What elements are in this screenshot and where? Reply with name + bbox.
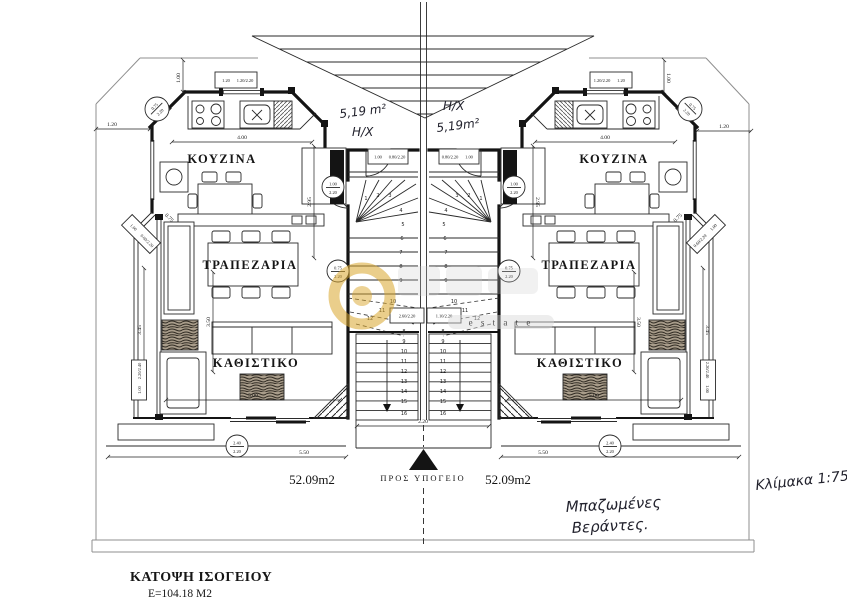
dining-label-left: ΤΡΑΠΕΖΑΡΙΑ <box>202 258 297 272</box>
title-block: ΚΑΤΟΨΗ ΙΣΟΓΕΙΟΥ Ε=104.18 Μ2 <box>130 570 272 600</box>
dim-label: 2.95 <box>534 197 540 207</box>
step-num: 4 <box>399 208 402 214</box>
kitchen-label-right: ΚΟΥΖΙΝΑ <box>579 152 648 166</box>
entry-hall-notes: 5,19 m² Η/Χ Η/Χ 5,19m² <box>339 99 481 139</box>
step-num: 2 <box>467 193 470 199</box>
verandas-note-line1: Μπαζωμένες <box>565 493 662 516</box>
opening-label: 2.20 <box>510 190 518 195</box>
step-num: 14 <box>401 389 407 395</box>
verandas-note-line2: Βεράντες. <box>571 515 649 537</box>
dim-label: 4.00 <box>237 135 247 141</box>
living-label-right: ΚΑΘΙΣΤΙΚΟ <box>537 356 623 370</box>
floor-plan-page: ΠΡΟΣ ΥΠΟΓΕΙΟ 4.00 4.00 2.95 2.95 1.20 1.… <box>0 0 847 600</box>
step-num: 13 <box>401 379 407 385</box>
unit-area-left: 52.09m2 <box>289 472 335 487</box>
opening-label: 2.20 <box>329 190 337 195</box>
step-num: 13 <box>440 379 446 385</box>
hall-area-right: 5,19m² <box>436 116 481 135</box>
opening-label: 2.40 <box>233 441 241 446</box>
opening-label: 2.20/2.40 <box>705 362 710 379</box>
dim-label: 2.20 <box>418 419 428 425</box>
dim-label: 5.50 <box>299 450 309 456</box>
opening-label: 1.20 <box>617 78 625 83</box>
drawing-area: Ε=104.18 Μ2 <box>148 588 212 600</box>
opening-label: 1.00 <box>374 155 382 160</box>
opening-label: 1.00 <box>510 182 518 187</box>
step-num: 1 <box>479 196 482 202</box>
step-num: 6 <box>400 236 403 242</box>
kitchen-label-left: ΚΟΥΖΙΝΑ <box>187 152 256 166</box>
dim-label: 3.45 <box>137 325 143 335</box>
dining-label-right: ΤΡΑΠΕΖΑΡΙΑ <box>541 258 636 272</box>
living-label-left: ΚΑΘΙΣΤΙΚΟ <box>213 356 299 370</box>
dim-label: 1.00 <box>176 73 182 83</box>
step-num: 9 <box>441 339 444 345</box>
to-basement-label: ΠΡΟΣ ΥΠΟΓΕΙΟ <box>380 473 465 483</box>
opening-label: 0.80/2.20 <box>389 155 406 160</box>
hall-left: Η/Χ <box>352 125 374 139</box>
step-num: 16 <box>401 411 407 417</box>
step-num: 10 <box>401 349 407 355</box>
step-num: 3 <box>388 193 391 199</box>
step-num: 11 <box>440 359 446 365</box>
step-num: 3 <box>455 193 458 199</box>
dim-label: 1.00 <box>665 73 671 83</box>
opening-label: 2.20 <box>233 449 241 454</box>
scale-note: Κλίμακα 1:75 <box>755 468 847 494</box>
step-num: 7 <box>444 250 447 256</box>
opening-label: 1.00 <box>137 385 142 393</box>
step-num: 4 <box>444 208 447 214</box>
basement-arrow-icon <box>409 449 438 470</box>
dim-label: 4.00 <box>600 135 610 141</box>
step-num: 8 <box>441 329 444 335</box>
dim-label: 3.45 <box>704 325 710 335</box>
opening-label: 2.20/2.40 <box>137 362 142 379</box>
step-num: 11 <box>462 308 468 314</box>
step-num: 10 <box>451 299 457 305</box>
step-num: 16 <box>440 411 446 417</box>
step-num: 15 <box>440 399 446 405</box>
step-num: 5 <box>442 222 445 228</box>
opening-label: 2.60/2.20 <box>399 314 416 319</box>
floor-plan-drawing: ΠΡΟΣ ΥΠΟΓΕΙΟ 4.00 4.00 2.95 2.95 1.20 1.… <box>0 0 847 600</box>
step-num: 1 <box>364 196 367 202</box>
step-num: 6 <box>443 236 446 242</box>
watermark-text: e s t a t e <box>469 318 534 328</box>
opening-label: 1.20/2.20 <box>237 78 254 83</box>
dim-label: 1.20 <box>107 122 117 128</box>
step-num: 11 <box>401 359 407 365</box>
opening-label: 1.20/2.20 <box>594 78 611 83</box>
opening-label: 1.20 <box>222 78 230 83</box>
entrance-canopy <box>250 36 596 118</box>
stair-numbers: 1 2 3 4 5 6 7 8 9 10 11 12 8 9 10 11 12 … <box>364 193 482 417</box>
dim-label: 5.00 <box>589 393 599 399</box>
unit-area-right: 52.09m2 <box>485 472 531 487</box>
hall-area-left: 5,19 m² <box>339 101 388 121</box>
dim-label: 3.50 <box>206 317 212 327</box>
hall-right: Η/Χ <box>443 99 465 113</box>
dim-label: 2.95 <box>307 197 313 207</box>
step-num: 14 <box>440 389 446 395</box>
step-num: 5 <box>401 222 404 228</box>
step-num: 10 <box>440 349 446 355</box>
opening-label: 2.20 <box>606 449 614 454</box>
opening-label: 0.80/2.20 <box>442 155 459 160</box>
step-num: 8 <box>402 329 405 335</box>
opening-label: 1.00 <box>705 385 710 393</box>
opening-label: 1.00 <box>329 182 337 187</box>
drawing-title: ΚΑΤΟΨΗ ΙΣΟΓΕΙΟΥ <box>130 570 272 585</box>
step-num: 9 <box>402 339 405 345</box>
step-num: 12 <box>440 369 446 375</box>
step-num: 12 <box>401 369 407 375</box>
step-num: 2 <box>376 193 379 199</box>
dim-label: 5.50 <box>538 450 548 456</box>
dim-label: 1.20 <box>719 124 729 130</box>
step-num: 7 <box>399 250 402 256</box>
dim-label: 5.00 <box>248 393 258 399</box>
dim-label: 3.50 <box>635 317 641 327</box>
margin-notes: Μπαζωμένες Βεράντες. Κλίμακα 1:75 <box>565 468 847 537</box>
step-num: 15 <box>401 399 407 405</box>
opening-label: 2.40 <box>606 441 614 446</box>
opening-label: 1.00 <box>465 155 473 160</box>
